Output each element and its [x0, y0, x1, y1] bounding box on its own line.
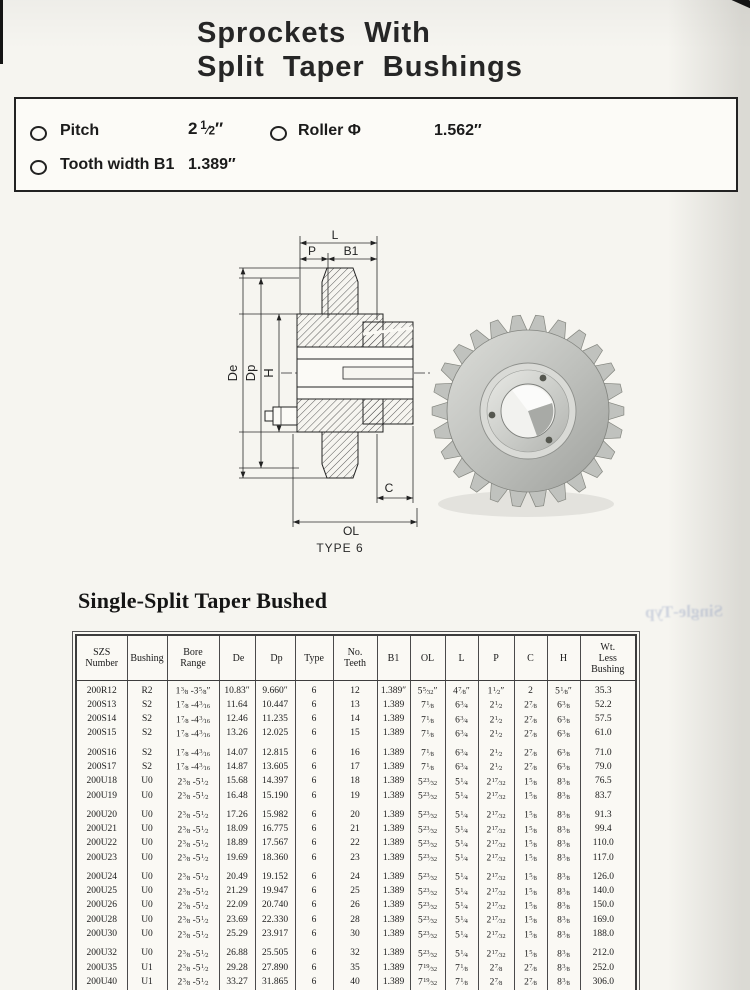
table-cell: 6 3⁄8	[547, 760, 580, 774]
table-cell: 6 3⁄4	[445, 746, 478, 760]
table-cell: 6	[295, 808, 333, 822]
table-cell: U1	[127, 961, 167, 975]
table-cell: 5 1⁄4	[445, 823, 478, 837]
table-cell: 19.69	[219, 851, 255, 865]
table-cell: 2 7⁄8	[514, 961, 547, 975]
table-cell: 200U30	[77, 928, 127, 942]
table-cell: 2 17⁄32	[478, 775, 514, 789]
table-cell: 5 1⁄4	[445, 775, 478, 789]
table-cell: 6	[295, 885, 333, 899]
table-cell: 79.0	[580, 760, 635, 774]
table-cell: 2 17⁄32	[478, 885, 514, 899]
table-cell: 8 3⁄8	[547, 975, 580, 989]
column-header: P	[478, 636, 514, 681]
table-cell: 9.660″	[255, 681, 295, 699]
table-cell: 8 3⁄8	[547, 947, 580, 961]
table-cell: 11.235	[255, 713, 295, 727]
table-cell: 2 3⁄8 -5 1⁄2	[167, 975, 219, 989]
table-cell: 5 23⁄32	[410, 851, 445, 865]
table-cell: 8 3⁄8	[547, 823, 580, 837]
table-cell: 21.29	[219, 885, 255, 899]
table-cell: 14.87	[219, 760, 255, 774]
table-cell: 26	[333, 899, 377, 913]
table-cell: 1.389	[377, 823, 410, 837]
table-cell: 16.48	[219, 789, 255, 803]
table-cell: 200S16	[77, 746, 127, 760]
table-cell: 23.917	[255, 928, 295, 942]
table-cell: 2 3⁄8 -5 1⁄2	[167, 870, 219, 884]
table-cell: 6	[295, 837, 333, 851]
table-cell: 2 3⁄8 -5 1⁄2	[167, 899, 219, 913]
table-cell: 200U24	[77, 870, 127, 884]
table-cell: 200U19	[77, 789, 127, 803]
page-title-line2: Split Taper Bushings	[197, 50, 523, 84]
table-cell: 6	[295, 870, 333, 884]
table-cell: 1.389	[377, 851, 410, 865]
table-cell: 8 3⁄8	[547, 899, 580, 913]
catalog-page: Sprockets With Split Taper Bushings Pitc…	[0, 0, 750, 990]
table-cell: U1	[127, 975, 167, 989]
table-row: 200R12R21 3⁄8 -3 5⁄8″10.83″9.660″6121.38…	[77, 681, 635, 699]
column-header: C	[514, 636, 547, 681]
table-cell: 2 17⁄32	[478, 808, 514, 822]
table-cell: 2 1⁄2	[478, 713, 514, 727]
table-cell: 6	[295, 947, 333, 961]
table-cell: 6	[295, 928, 333, 942]
spec-table-frame: SZS NumberBushingBore RangeDeDpTypeNo. T…	[72, 631, 640, 990]
table-cell: 83.7	[580, 789, 635, 803]
roller-diameter-value: 1.562″	[434, 122, 482, 140]
table-cell: 1.389	[377, 885, 410, 899]
table-cell: 252.0	[580, 961, 635, 975]
table-cell: 1.389	[377, 713, 410, 727]
table-cell: 2	[514, 681, 547, 699]
table-cell: 2 7⁄8	[514, 975, 547, 989]
table-cell: 200U28	[77, 913, 127, 927]
table-cell: 200U35	[77, 961, 127, 975]
table-row: 200S15S21 7⁄8 -4 3⁄1613.2612.0256151.389…	[77, 727, 635, 741]
table-cell: 12.025	[255, 727, 295, 741]
table-cell: 5 23⁄32	[410, 823, 445, 837]
table-cell: U0	[127, 837, 167, 851]
table-cell: 12	[333, 681, 377, 699]
table-cell: 27.890	[255, 961, 295, 975]
table-cell: 22.330	[255, 913, 295, 927]
table-row: 200U28U02 3⁄8 -5 1⁄223.6922.3306281.3895…	[77, 913, 635, 927]
table-cell: U0	[127, 885, 167, 899]
table-cell: 22	[333, 837, 377, 851]
page-title-line1: Sprockets With	[197, 16, 523, 50]
table-cell: 2 17⁄32	[478, 823, 514, 837]
sprocket-cross-section-diagram: L P B1 De Dp H C OL	[213, 226, 445, 538]
table-cell: 1 5⁄8	[514, 913, 547, 927]
table-cell: 2 3⁄8 -5 1⁄2	[167, 947, 219, 961]
table-cell: 5 1⁄4	[445, 851, 478, 865]
table-cell: S2	[127, 727, 167, 741]
table-cell: 32	[333, 947, 377, 961]
table-cell: 8 3⁄8	[547, 775, 580, 789]
table-cell: 21	[333, 823, 377, 837]
table-cell: 18.09	[219, 823, 255, 837]
table-cell: 13.605	[255, 760, 295, 774]
table-cell: 1 5⁄8	[514, 823, 547, 837]
table-cell: 5 1⁄4	[445, 837, 478, 851]
spec-table: SZS NumberBushingBore RangeDeDpTypeNo. T…	[77, 636, 635, 990]
dim-label-h: H	[261, 368, 276, 377]
column-header: OL	[410, 636, 445, 681]
table-cell: 200U26	[77, 899, 127, 913]
table-cell: 6	[295, 823, 333, 837]
table-cell: 6	[295, 789, 333, 803]
table-cell: 2 3⁄8 -5 1⁄2	[167, 837, 219, 851]
table-cell: 2 3⁄8 -5 1⁄2	[167, 789, 219, 803]
table-cell: 5 23⁄32	[410, 775, 445, 789]
table-cell: 188.0	[580, 928, 635, 942]
table-cell: 5 23⁄32	[410, 870, 445, 884]
table-cell: 14.397	[255, 775, 295, 789]
sprocket-photo	[428, 308, 635, 536]
table-cell: 5 1⁄4	[445, 913, 478, 927]
table-cell: 8 3⁄8	[547, 913, 580, 927]
table-cell: 2 7⁄8	[478, 975, 514, 989]
table-cell: 57.5	[580, 713, 635, 727]
table-cell: 2 17⁄32	[478, 870, 514, 884]
table-cell: 18.89	[219, 837, 255, 851]
table-cell: 110.0	[580, 837, 635, 851]
dim-label-b1: B1	[344, 244, 359, 258]
table-cell: U0	[127, 808, 167, 822]
table-cell: 200U20	[77, 808, 127, 822]
table-cell: 1.389	[377, 870, 410, 884]
table-cell: U0	[127, 823, 167, 837]
table-row: 200S16S21 7⁄8 -4 3⁄1614.0712.8156161.389…	[77, 746, 635, 760]
table-cell: 1 7⁄8 -4 3⁄16	[167, 727, 219, 741]
roller-diameter-label: Roller Φ	[298, 122, 361, 140]
table-row: 200U25U02 3⁄8 -5 1⁄221.2919.9476251.3895…	[77, 885, 635, 899]
table-cell: 17.567	[255, 837, 295, 851]
column-header: Bushing	[127, 636, 167, 681]
section-heading: Single-Split Taper Bushed	[78, 588, 327, 614]
bleed-through-ghost-text: Single-Typ	[645, 601, 723, 622]
table-cell: 6 3⁄4	[445, 727, 478, 741]
table-cell: U0	[127, 789, 167, 803]
table-cell: 4 7⁄8″	[445, 681, 478, 699]
table-cell: 2 3⁄8 -5 1⁄2	[167, 928, 219, 942]
table-row: 200U19U02 3⁄8 -5 1⁄216.4815.1906191.3895…	[77, 789, 635, 803]
table-cell: 6	[295, 913, 333, 927]
table-cell: 31.865	[255, 975, 295, 989]
column-header: Wt. Less Bushing	[580, 636, 635, 681]
table-cell: S2	[127, 713, 167, 727]
table-cell: 1 7⁄8 -4 3⁄16	[167, 713, 219, 727]
table-cell: 20.49	[219, 870, 255, 884]
dim-label-p: P	[308, 244, 316, 258]
table-cell: 2 17⁄32	[478, 947, 514, 961]
table-cell: 1 5⁄8	[514, 947, 547, 961]
scan-edge-artifact	[0, 0, 3, 64]
table-cell: 1.389	[377, 727, 410, 741]
table-cell: 23.69	[219, 913, 255, 927]
table-cell: 35.3	[580, 681, 635, 699]
table-cell: 11.64	[219, 698, 255, 712]
table-cell: 5 23⁄32	[410, 885, 445, 899]
column-header: SZS Number	[77, 636, 127, 681]
table-cell: 6 3⁄8	[547, 746, 580, 760]
table-cell: 1.389	[377, 913, 410, 927]
table-cell: 5 23⁄32	[410, 837, 445, 851]
spec-table-body: 200R12R21 3⁄8 -3 5⁄8″10.83″9.660″6121.38…	[77, 681, 635, 990]
table-cell: 200U25	[77, 885, 127, 899]
table-cell: 2 17⁄32	[478, 913, 514, 927]
table-cell: 71.0	[580, 746, 635, 760]
table-cell: 6 3⁄8	[547, 727, 580, 741]
table-cell: U0	[127, 775, 167, 789]
table-cell: 12.46	[219, 713, 255, 727]
table-cell: 2 7⁄8	[478, 961, 514, 975]
table-cell: 15.190	[255, 789, 295, 803]
table-cell: 19	[333, 789, 377, 803]
table-cell: 1 5⁄8	[514, 885, 547, 899]
table-cell: 2 17⁄32	[478, 899, 514, 913]
column-header: B1	[377, 636, 410, 681]
table-cell: 1.389	[377, 808, 410, 822]
table-cell: 8 3⁄8	[547, 837, 580, 851]
table-cell: 5 1⁄4	[445, 808, 478, 822]
table-cell: 5 5⁄32″	[410, 681, 445, 699]
table-cell: 1.389	[377, 928, 410, 942]
table-cell: 7 19⁄32	[410, 975, 445, 989]
table-cell: 13.26	[219, 727, 255, 741]
table-cell: 1 5⁄8	[514, 899, 547, 913]
table-cell: 126.0	[580, 870, 635, 884]
table-cell: 1.389	[377, 975, 410, 989]
table-cell: 1 5⁄8	[514, 775, 547, 789]
table-cell: 2 1⁄2	[478, 698, 514, 712]
pitch-label: Pitch	[60, 122, 99, 140]
table-cell: 8 3⁄8	[547, 808, 580, 822]
table-row: 200U32U02 3⁄8 -5 1⁄226.8825.5056321.3895…	[77, 947, 635, 961]
table-cell: 169.0	[580, 913, 635, 927]
table-cell: 16.775	[255, 823, 295, 837]
table-cell: S2	[127, 746, 167, 760]
table-cell: 8 3⁄8	[547, 851, 580, 865]
table-cell: 1.389	[377, 698, 410, 712]
table-cell: 6	[295, 775, 333, 789]
table-cell: 200U21	[77, 823, 127, 837]
table-cell: 200S17	[77, 760, 127, 774]
table-cell: 7 1⁄8	[410, 698, 445, 712]
table-cell: 15.982	[255, 808, 295, 822]
table-cell: 6	[295, 975, 333, 989]
table-cell: 30	[333, 928, 377, 942]
table-cell: 5 1⁄4	[445, 899, 478, 913]
table-cell: 8 3⁄8	[547, 928, 580, 942]
table-cell: 25.29	[219, 928, 255, 942]
table-cell: 5 1⁄8″	[547, 681, 580, 699]
table-cell: 1 5⁄8	[514, 851, 547, 865]
table-cell: 6 3⁄4	[445, 698, 478, 712]
column-header: L	[445, 636, 478, 681]
table-cell: 76.5	[580, 775, 635, 789]
table-cell: 6 3⁄4	[445, 760, 478, 774]
table-cell: 19.152	[255, 870, 295, 884]
table-cell: 17.26	[219, 808, 255, 822]
table-cell: 33.27	[219, 975, 255, 989]
table-cell: U0	[127, 913, 167, 927]
table-cell: 10.447	[255, 698, 295, 712]
table-cell: 18.360	[255, 851, 295, 865]
bullet-circle-icon	[30, 160, 47, 175]
table-cell: 6	[295, 961, 333, 975]
table-cell: 1.389	[377, 947, 410, 961]
table-cell: 5 23⁄32	[410, 947, 445, 961]
table-cell: 6	[295, 746, 333, 760]
bullet-circle-icon	[30, 126, 47, 141]
column-header: De	[219, 636, 255, 681]
table-cell: 200U32	[77, 947, 127, 961]
table-cell: 200S13	[77, 698, 127, 712]
table-cell: R2	[127, 681, 167, 699]
column-header: H	[547, 636, 580, 681]
table-cell: S2	[127, 760, 167, 774]
table-cell: 7 1⁄8	[410, 760, 445, 774]
table-cell: 1 7⁄8 -4 3⁄16	[167, 698, 219, 712]
table-cell: 7 1⁄8	[410, 746, 445, 760]
bullet-circle-icon	[270, 126, 287, 141]
table-cell: 2 3⁄8 -5 1⁄2	[167, 851, 219, 865]
table-row: 200U23U02 3⁄8 -5 1⁄219.6918.3606231.3895…	[77, 851, 635, 865]
table-cell: 6	[295, 727, 333, 741]
table-cell: 25	[333, 885, 377, 899]
table-cell: 2 3⁄8 -5 1⁄2	[167, 885, 219, 899]
table-cell: 14	[333, 713, 377, 727]
table-cell: 29.28	[219, 961, 255, 975]
table-cell: 1.389	[377, 837, 410, 851]
table-cell: 5 1⁄4	[445, 870, 478, 884]
table-cell: 2 17⁄32	[478, 851, 514, 865]
table-cell: 150.0	[580, 899, 635, 913]
table-cell: 140.0	[580, 885, 635, 899]
table-cell: 5 1⁄4	[445, 789, 478, 803]
table-row: 200U22U02 3⁄8 -5 1⁄218.8917.5676221.3895…	[77, 837, 635, 851]
dim-label-l: L	[332, 228, 339, 242]
table-cell: 2 17⁄32	[478, 837, 514, 851]
table-cell: 1 7⁄8 -4 3⁄16	[167, 746, 219, 760]
table-cell: 25.505	[255, 947, 295, 961]
table-cell: 24	[333, 870, 377, 884]
table-cell: 26.88	[219, 947, 255, 961]
table-cell: 5 1⁄4	[445, 947, 478, 961]
tooth-width-value: 1.389″	[188, 156, 236, 174]
table-row: 200U40U12 3⁄8 -5 1⁄233.2731.8656401.3897…	[77, 975, 635, 989]
table-cell: 2 3⁄8 -5 1⁄2	[167, 913, 219, 927]
table-cell: 1 5⁄8	[514, 837, 547, 851]
table-cell: 40	[333, 975, 377, 989]
column-header: No. Teeth	[333, 636, 377, 681]
table-cell: 18	[333, 775, 377, 789]
column-header: Type	[295, 636, 333, 681]
table-cell: 6 3⁄8	[547, 713, 580, 727]
column-header: Bore Range	[167, 636, 219, 681]
table-cell: 1.389″	[377, 681, 410, 699]
table-cell: 5 23⁄32	[410, 899, 445, 913]
table-cell: 1.389	[377, 961, 410, 975]
table-cell: 1.389	[377, 775, 410, 789]
table-cell: 35	[333, 961, 377, 975]
table-cell: 1 5⁄8	[514, 928, 547, 942]
table-cell: 2 1⁄2	[478, 760, 514, 774]
table-cell: 200U40	[77, 975, 127, 989]
table-row: 200U21U02 3⁄8 -5 1⁄218.0916.7756211.3895…	[77, 823, 635, 837]
table-cell: 8 3⁄8	[547, 789, 580, 803]
table-row: 200S13S21 7⁄8 -4 3⁄1611.6410.4476131.389…	[77, 698, 635, 712]
table-cell: 200S15	[77, 727, 127, 741]
table-cell: 6	[295, 851, 333, 865]
table-row: 200U35U12 3⁄8 -5 1⁄229.2827.8906351.3897…	[77, 961, 635, 975]
table-cell: 200R12	[77, 681, 127, 699]
table-cell: 2 7⁄8	[514, 760, 547, 774]
table-row: 200S14S21 7⁄8 -4 3⁄1612.4611.2356141.389…	[77, 713, 635, 727]
table-cell: 2 1⁄2	[478, 727, 514, 741]
table-cell: 5 1⁄4	[445, 885, 478, 899]
table-cell: 5 23⁄32	[410, 913, 445, 927]
table-cell: 2 7⁄8	[514, 727, 547, 741]
page-title: Sprockets With Split Taper Bushings	[197, 16, 523, 84]
table-cell: 5 23⁄32	[410, 808, 445, 822]
table-cell: 1 7⁄8 -4 3⁄16	[167, 760, 219, 774]
table-row: 200U30U02 3⁄8 -5 1⁄225.2923.9176301.3895…	[77, 928, 635, 942]
table-cell: 2 17⁄32	[478, 789, 514, 803]
table-cell: 99.4	[580, 823, 635, 837]
table-cell: U0	[127, 870, 167, 884]
table-row: 200U26U02 3⁄8 -5 1⁄222.0920.7406261.3895…	[77, 899, 635, 913]
table-cell: 117.0	[580, 851, 635, 865]
table-cell: 23	[333, 851, 377, 865]
table-cell: 200U22	[77, 837, 127, 851]
table-cell: 8 3⁄8	[547, 885, 580, 899]
table-cell: 22.09	[219, 899, 255, 913]
table-cell: 6 3⁄8	[547, 698, 580, 712]
table-cell: U0	[127, 928, 167, 942]
table-cell: 20	[333, 808, 377, 822]
table-cell: U0	[127, 947, 167, 961]
table-cell: 8 3⁄8	[547, 870, 580, 884]
diagram-type-caption: TYPE 6	[292, 541, 388, 555]
table-cell: 2 1⁄2	[478, 746, 514, 760]
dim-label-de: De	[225, 365, 240, 382]
table-row: 200U24U02 3⁄8 -5 1⁄220.4919.1526241.3895…	[77, 870, 635, 884]
table-cell: 6 3⁄4	[445, 713, 478, 727]
table-cell: 20.740	[255, 899, 295, 913]
table-cell: 15.68	[219, 775, 255, 789]
table-cell: 2 17⁄32	[478, 928, 514, 942]
column-header: Dp	[255, 636, 295, 681]
table-cell: 2 7⁄8	[514, 698, 547, 712]
table-cell: 306.0	[580, 975, 635, 989]
table-cell: 212.0	[580, 947, 635, 961]
table-cell: 10.83″	[219, 681, 255, 699]
table-cell: 2 3⁄8 -5 1⁄2	[167, 961, 219, 975]
table-cell: 1.389	[377, 789, 410, 803]
table-row: 200U20U02 3⁄8 -5 1⁄217.2615.9826201.3895…	[77, 808, 635, 822]
table-cell: 15	[333, 727, 377, 741]
table-cell: 1 5⁄8	[514, 870, 547, 884]
table-cell: 1.389	[377, 899, 410, 913]
table-cell: 7 1⁄8	[445, 961, 478, 975]
table-cell: 7 19⁄32	[410, 961, 445, 975]
table-cell: 2 3⁄8 -5 1⁄2	[167, 775, 219, 789]
table-cell: 6	[295, 681, 333, 699]
